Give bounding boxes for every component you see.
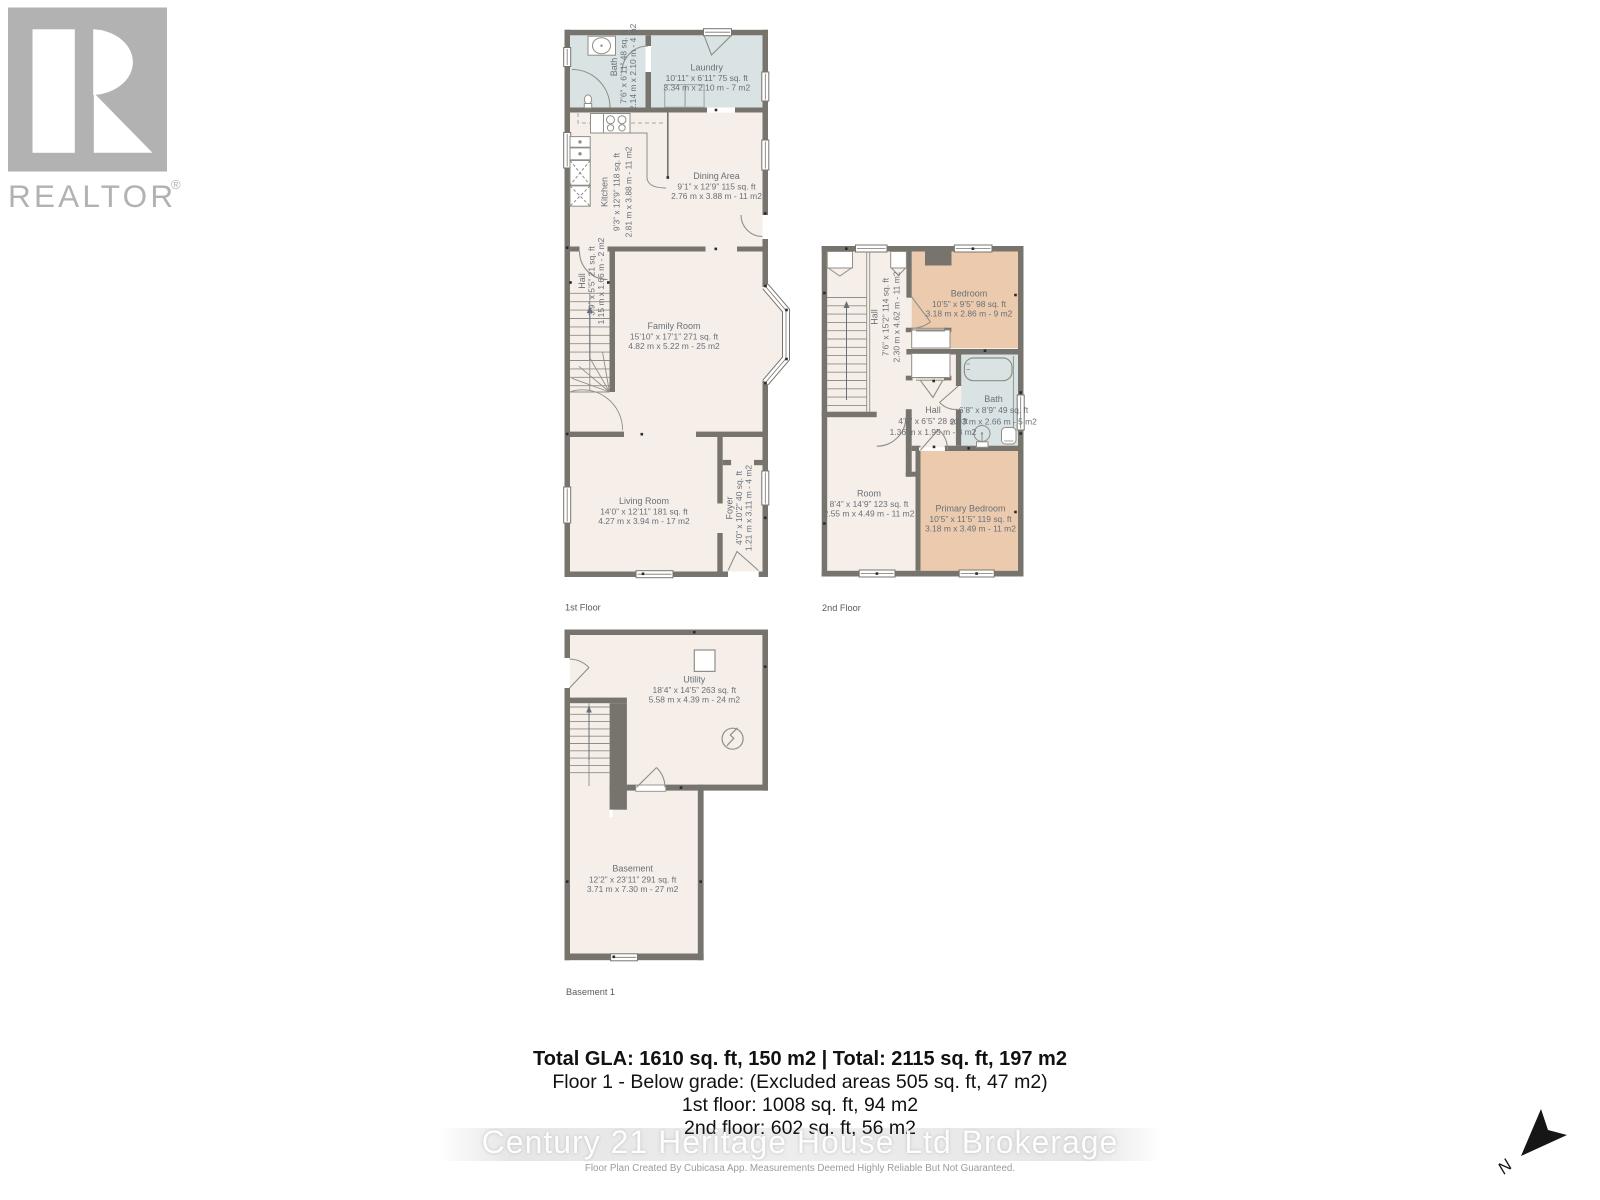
svg-text:Basement: Basement bbox=[612, 864, 653, 874]
svg-text:2.76 m x 3.88 m - 11 m2: 2.76 m x 3.88 m - 11 m2 bbox=[671, 191, 762, 201]
svg-text:Laundry: Laundry bbox=[691, 63, 724, 73]
svg-text:3.34 m x 2.10 m - 7 m2: 3.34 m x 2.10 m - 7 m2 bbox=[663, 83, 750, 93]
svg-text:Bath: Bath bbox=[984, 394, 1003, 404]
svg-text:14’0” x 12’11” 181 sq. ft: 14’0” x 12’11” 181 sq. ft bbox=[600, 507, 688, 517]
svg-text:Bedroom: Bedroom bbox=[951, 288, 988, 298]
svg-text:Bath: Bath bbox=[609, 58, 619, 77]
svg-text:6’8” x 8’9” 49 sq. ft: 6’8” x 8’9” 49 sq. ft bbox=[959, 405, 1029, 415]
svg-text:3.18 m x 2.86 m - 9 m2: 3.18 m x 2.86 m - 9 m2 bbox=[926, 309, 1013, 319]
svg-text:Living Room: Living Room bbox=[619, 496, 669, 506]
svg-text:15’10” x 17’1” 271 sq. ft: 15’10” x 17’1” 271 sq. ft bbox=[630, 332, 719, 342]
svg-text:18’4” x 14’5” 263 sq. ft: 18’4” x 14’5” 263 sq. ft bbox=[653, 685, 737, 695]
svg-text:3.71 m x 7.30 m - 27 m2: 3.71 m x 7.30 m - 27 m2 bbox=[587, 884, 679, 894]
svg-text:Kitchen: Kitchen bbox=[600, 177, 610, 207]
svg-text:4’5” x 6’5” 28 sq. ft: 4’5” x 6’5” 28 sq. ft bbox=[898, 416, 968, 426]
svg-text:9’3” x 12’9” 118 sq. ft: 9’3” x 12’9” 118 sq. ft bbox=[612, 152, 622, 231]
svg-text:1st Floor: 1st Floor bbox=[565, 603, 601, 613]
svg-text:2.14 m x 2.10 m - 4 m2: 2.14 m x 2.10 m - 4 m2 bbox=[628, 23, 638, 110]
svg-text:4’0” x 10’2” 40 sq. ft: 4’0” x 10’2” 40 sq. ft bbox=[734, 470, 744, 545]
svg-text:12’2” x 23’11” 291 sq. ft: 12’2” x 23’11” 291 sq. ft bbox=[589, 874, 677, 884]
svg-text:Foyer: Foyer bbox=[725, 496, 735, 519]
svg-text:®: ® bbox=[171, 177, 181, 192]
svg-text:2nd Floor: 2nd Floor bbox=[822, 603, 861, 613]
svg-text:7’6” x 15’2” 114 sq. ft: 7’6” x 15’2” 114 sq. ft bbox=[881, 277, 891, 356]
svg-text:4.27 m x 3.94 m - 17 m2: 4.27 m x 3.94 m - 17 m2 bbox=[598, 516, 690, 526]
svg-text:2.81 m x 3.88 m - 11 m2: 2.81 m x 3.88 m - 11 m2 bbox=[624, 146, 634, 237]
svg-text:7’6” x 6’11” 48 sq. ft: 7’6” x 6’11” 48 sq. ft bbox=[619, 30, 629, 104]
svg-text:Hall: Hall bbox=[577, 273, 587, 289]
svg-text:Primary Bedroom: Primary Bedroom bbox=[935, 503, 1005, 513]
svg-text:1.36 m x 1.95 m - 3 m2: 1.36 m x 1.95 m - 3 m2 bbox=[890, 427, 977, 437]
svg-text:1.15 m x 1.66 m - 2 m2: 1.15 m x 1.66 m - 2 m2 bbox=[596, 237, 606, 324]
svg-text:3’9” x 5’5” 21 sq. ft: 3’9” x 5’5” 21 sq. ft bbox=[587, 246, 597, 316]
svg-text:Family Room: Family Room bbox=[647, 321, 700, 331]
svg-text:Utility: Utility bbox=[683, 674, 705, 684]
svg-text:2.30 m x 4.62 m - 11 m2: 2.30 m x 4.62 m - 11 m2 bbox=[892, 271, 902, 362]
svg-text:2.55 m x 4.49 m - 11 m2: 2.55 m x 4.49 m - 11 m2 bbox=[824, 509, 915, 519]
svg-text:5.58 m x 4.39 m - 24 m2: 5.58 m x 4.39 m - 24 m2 bbox=[649, 695, 741, 705]
svg-text:8’4” x 14’9” 123 sq. ft: 8’4” x 14’9” 123 sq. ft bbox=[830, 499, 909, 509]
svg-text:1.21 m x 3.11 m - 4 m2: 1.21 m x 3.11 m - 4 m2 bbox=[744, 465, 754, 551]
svg-text:10’5” x 11’5” 119 sq. ft: 10’5” x 11’5” 119 sq. ft bbox=[929, 514, 1012, 524]
svg-text:10’5” x 9’5” 98 sq. ft: 10’5” x 9’5” 98 sq. ft bbox=[932, 299, 1007, 309]
svg-text:Basement 1: Basement 1 bbox=[566, 987, 615, 997]
svg-text:9’1” x 12’9” 115 sq. ft: 9’1” x 12’9” 115 sq. ft bbox=[677, 182, 756, 192]
svg-text:Room: Room bbox=[857, 488, 881, 498]
svg-text:Hall: Hall bbox=[870, 309, 880, 325]
svg-text:Hall: Hall bbox=[925, 405, 941, 415]
svg-text:3.18 m x 3.49 m - 11 m2: 3.18 m x 3.49 m - 11 m2 bbox=[925, 524, 1016, 534]
svg-text:4.82 m x 5.22 m - 25 m2: 4.82 m x 5.22 m - 25 m2 bbox=[628, 341, 720, 351]
svg-text:Dining Area: Dining Area bbox=[693, 171, 740, 181]
svg-text:REALTOR: REALTOR bbox=[8, 178, 176, 214]
svg-text:10’11” x 6’11” 75 sq. ft: 10’11” x 6’11” 75 sq. ft bbox=[666, 73, 749, 83]
